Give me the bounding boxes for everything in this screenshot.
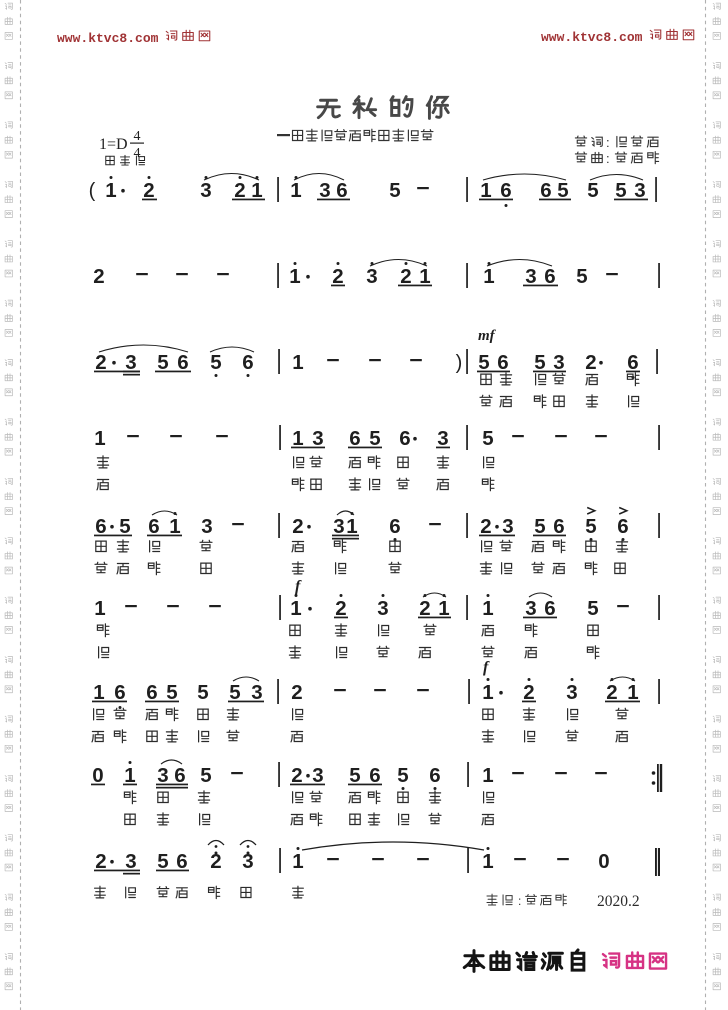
svg-text:2: 2 [234, 179, 245, 202]
svg-text:5: 5 [585, 515, 596, 538]
svg-text:2: 2 [523, 681, 534, 704]
svg-text:5: 5 [615, 179, 626, 202]
svg-text:5: 5 [157, 850, 168, 873]
svg-text:1: 1 [94, 427, 105, 450]
svg-text:3: 3 [525, 265, 536, 288]
svg-text:(: ( [89, 180, 96, 202]
svg-text:1: 1 [290, 597, 301, 620]
svg-text:3: 3 [525, 597, 536, 620]
svg-text:5: 5 [557, 179, 568, 202]
svg-text:1: 1 [292, 351, 303, 374]
svg-text:6: 6 [336, 179, 347, 202]
svg-text:5: 5 [534, 351, 545, 374]
svg-text:3: 3 [366, 265, 377, 288]
svg-text::: : [606, 135, 610, 150]
svg-text:5: 5 [210, 351, 221, 374]
svg-text:2: 2 [95, 351, 106, 374]
svg-text:6: 6 [544, 265, 555, 288]
svg-text:5: 5 [397, 764, 408, 787]
svg-text::: : [606, 151, 610, 166]
svg-text:2: 2 [332, 265, 343, 288]
svg-text:1=D: 1=D [99, 136, 128, 153]
svg-text:1: 1 [292, 427, 303, 450]
svg-text:1: 1 [124, 764, 135, 787]
svg-text:6: 6 [429, 764, 440, 787]
svg-text:5: 5 [197, 681, 208, 704]
svg-text:6: 6 [553, 515, 564, 538]
svg-text:6: 6 [627, 351, 638, 374]
svg-text:6: 6 [540, 179, 551, 202]
svg-text:6: 6 [389, 515, 400, 538]
svg-text:2: 2 [143, 179, 154, 202]
svg-text:5: 5 [389, 179, 400, 202]
svg-text:3: 3 [634, 179, 645, 202]
svg-text:2: 2 [400, 265, 411, 288]
svg-text:3: 3 [200, 179, 211, 202]
svg-text:1: 1 [93, 681, 104, 704]
svg-text:3: 3 [312, 764, 323, 787]
svg-text:6: 6 [177, 351, 188, 374]
svg-text:1: 1 [251, 179, 262, 202]
svg-text:6: 6 [399, 427, 410, 450]
svg-text:5: 5 [369, 427, 380, 450]
svg-text:6: 6 [617, 515, 628, 538]
svg-text:6: 6 [242, 351, 253, 374]
svg-text:1: 1 [482, 764, 493, 787]
svg-text:5: 5 [166, 681, 177, 704]
svg-text:6: 6 [497, 351, 508, 374]
svg-text:1: 1 [482, 597, 493, 620]
svg-text:5: 5 [576, 265, 587, 288]
svg-text:3: 3 [437, 427, 448, 450]
svg-text:1: 1 [482, 850, 493, 873]
svg-text:4: 4 [134, 129, 141, 144]
svg-text:6: 6 [148, 515, 159, 538]
svg-text:www.ktvc8.com: www.ktvc8.com [57, 31, 159, 46]
svg-text:5: 5 [534, 515, 545, 538]
svg-text:1: 1 [169, 515, 180, 538]
svg-text:mf: mf [478, 328, 497, 344]
svg-text:3: 3 [377, 597, 388, 620]
svg-text:3: 3 [251, 681, 262, 704]
svg-text:5: 5 [119, 515, 130, 538]
svg-text:6: 6 [544, 597, 555, 620]
svg-text:6: 6 [176, 850, 187, 873]
svg-text:1: 1 [627, 681, 638, 704]
svg-text:5: 5 [482, 427, 493, 450]
svg-text:0: 0 [92, 764, 103, 787]
svg-text:3: 3 [319, 179, 330, 202]
svg-text:6: 6 [114, 681, 125, 704]
svg-text:3: 3 [502, 515, 513, 538]
svg-text:1: 1 [483, 265, 494, 288]
svg-text:2: 2 [291, 681, 302, 704]
svg-text:0: 0 [598, 850, 609, 873]
svg-text:6: 6 [174, 764, 185, 787]
svg-text::: : [518, 894, 521, 908]
svg-text:): ) [456, 352, 463, 374]
svg-text:1: 1 [480, 179, 491, 202]
svg-text:1: 1 [289, 265, 300, 288]
svg-text:2: 2 [93, 265, 104, 288]
svg-text:6: 6 [349, 427, 360, 450]
svg-text:2: 2 [335, 597, 346, 620]
svg-text:1: 1 [346, 515, 357, 538]
svg-text:2020.2: 2020.2 [597, 893, 640, 910]
svg-text:6: 6 [95, 515, 106, 538]
svg-text:6: 6 [146, 681, 157, 704]
svg-text:5: 5 [587, 179, 598, 202]
svg-text:2: 2 [585, 351, 596, 374]
svg-text:5: 5 [587, 597, 598, 620]
svg-text:1: 1 [438, 597, 449, 620]
svg-text:3: 3 [553, 351, 564, 374]
svg-text:1: 1 [290, 179, 301, 202]
svg-text:6: 6 [369, 764, 380, 787]
svg-text:3: 3 [125, 351, 136, 374]
svg-text:3: 3 [125, 850, 136, 873]
svg-text:3: 3 [333, 515, 344, 538]
svg-text:2: 2 [95, 850, 106, 873]
svg-text:2: 2 [480, 515, 491, 538]
svg-text:5: 5 [349, 764, 360, 787]
svg-text:1: 1 [482, 681, 493, 704]
svg-text:5: 5 [229, 681, 240, 704]
svg-text:2: 2 [292, 515, 303, 538]
svg-text:1: 1 [292, 850, 303, 873]
svg-text:1: 1 [94, 597, 105, 620]
svg-text:3: 3 [201, 515, 212, 538]
svg-text:2: 2 [606, 681, 617, 704]
svg-text:5: 5 [478, 351, 489, 374]
svg-text:1: 1 [419, 265, 430, 288]
svg-text:www.ktvc8.com: www.ktvc8.com [541, 30, 643, 45]
svg-text:2: 2 [419, 597, 430, 620]
svg-text:6: 6 [500, 179, 511, 202]
svg-text:5: 5 [157, 351, 168, 374]
svg-text:3: 3 [157, 764, 168, 787]
svg-text:2: 2 [291, 764, 302, 787]
svg-text:3: 3 [312, 427, 323, 450]
svg-text:1: 1 [105, 179, 116, 202]
svg-text:3: 3 [566, 681, 577, 704]
svg-text:5: 5 [200, 764, 211, 787]
